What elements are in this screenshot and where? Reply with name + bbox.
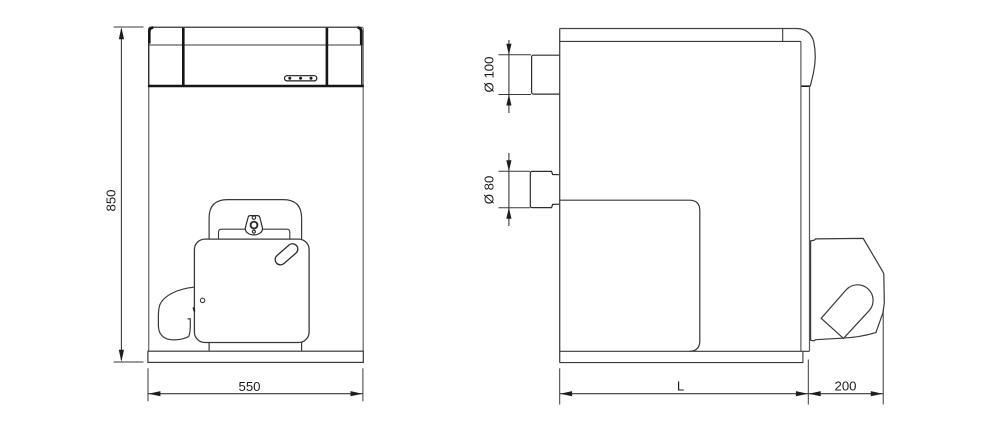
svg-text:550: 550 xyxy=(238,379,260,394)
svg-text:Ø 100: Ø 100 xyxy=(482,57,497,93)
svg-text:850: 850 xyxy=(104,189,119,211)
svg-text:200: 200 xyxy=(834,379,856,394)
svg-text:L: L xyxy=(677,379,684,394)
svg-text:Ø 80: Ø 80 xyxy=(482,176,497,205)
